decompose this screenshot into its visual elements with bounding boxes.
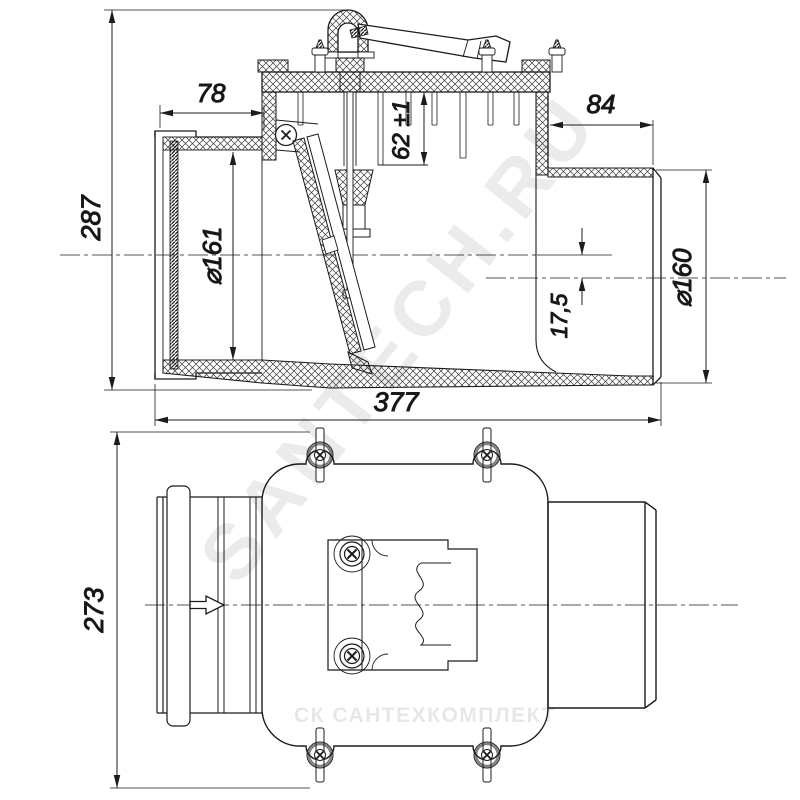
technical-drawing-page: SANTECH.RU СК САНТЕХКОМПЛЕКТ <box>0 0 800 800</box>
dim-cover-to-seat-label: 62 ±1 <box>388 100 415 160</box>
dim-overall-length-label: 377 <box>373 387 419 417</box>
dim-axis-offset: 17,5 <box>546 228 582 338</box>
flap-assembly <box>276 120 376 374</box>
footer-watermark: СК САНТЕХКОМПЛЕКТ <box>294 704 556 727</box>
dim-overall-width-label: 273 <box>79 587 109 633</box>
socket-seal <box>170 141 178 369</box>
dim-socket-depth: 78 <box>160 78 264 130</box>
dim-spigot-diameter-label: ⌀160 <box>667 248 697 308</box>
dim-socket-bore: ⌀161 <box>197 152 233 360</box>
dim-axis-offset-label: 17,5 <box>546 293 572 338</box>
lug-top-right <box>474 428 500 482</box>
dim-overall-height-label: 287 <box>76 194 106 241</box>
dim-overall-length: 377 <box>155 382 661 426</box>
dimensions: 287 78 84 62 ±1 ⌀161 ⌀160 17 <box>76 10 712 788</box>
dim-spigot-diameter: ⌀160 <box>656 170 712 383</box>
dim-socket-bore-label: ⌀161 <box>197 226 227 285</box>
dim-spigot-length-label: 84 <box>587 89 616 119</box>
flow-direction-arrow <box>190 596 224 614</box>
dim-cover-to-seat: 62 ±1 <box>388 92 424 165</box>
dim-overall-height: 287 <box>76 10 348 390</box>
check-valve-drawing: SANTECH.RU СК САНТЕХКОМПЛЕКТ <box>0 0 800 800</box>
lug-bottom-right <box>474 728 500 782</box>
lug-bottom-left <box>307 728 333 782</box>
dim-socket-depth-label: 78 <box>197 78 226 108</box>
